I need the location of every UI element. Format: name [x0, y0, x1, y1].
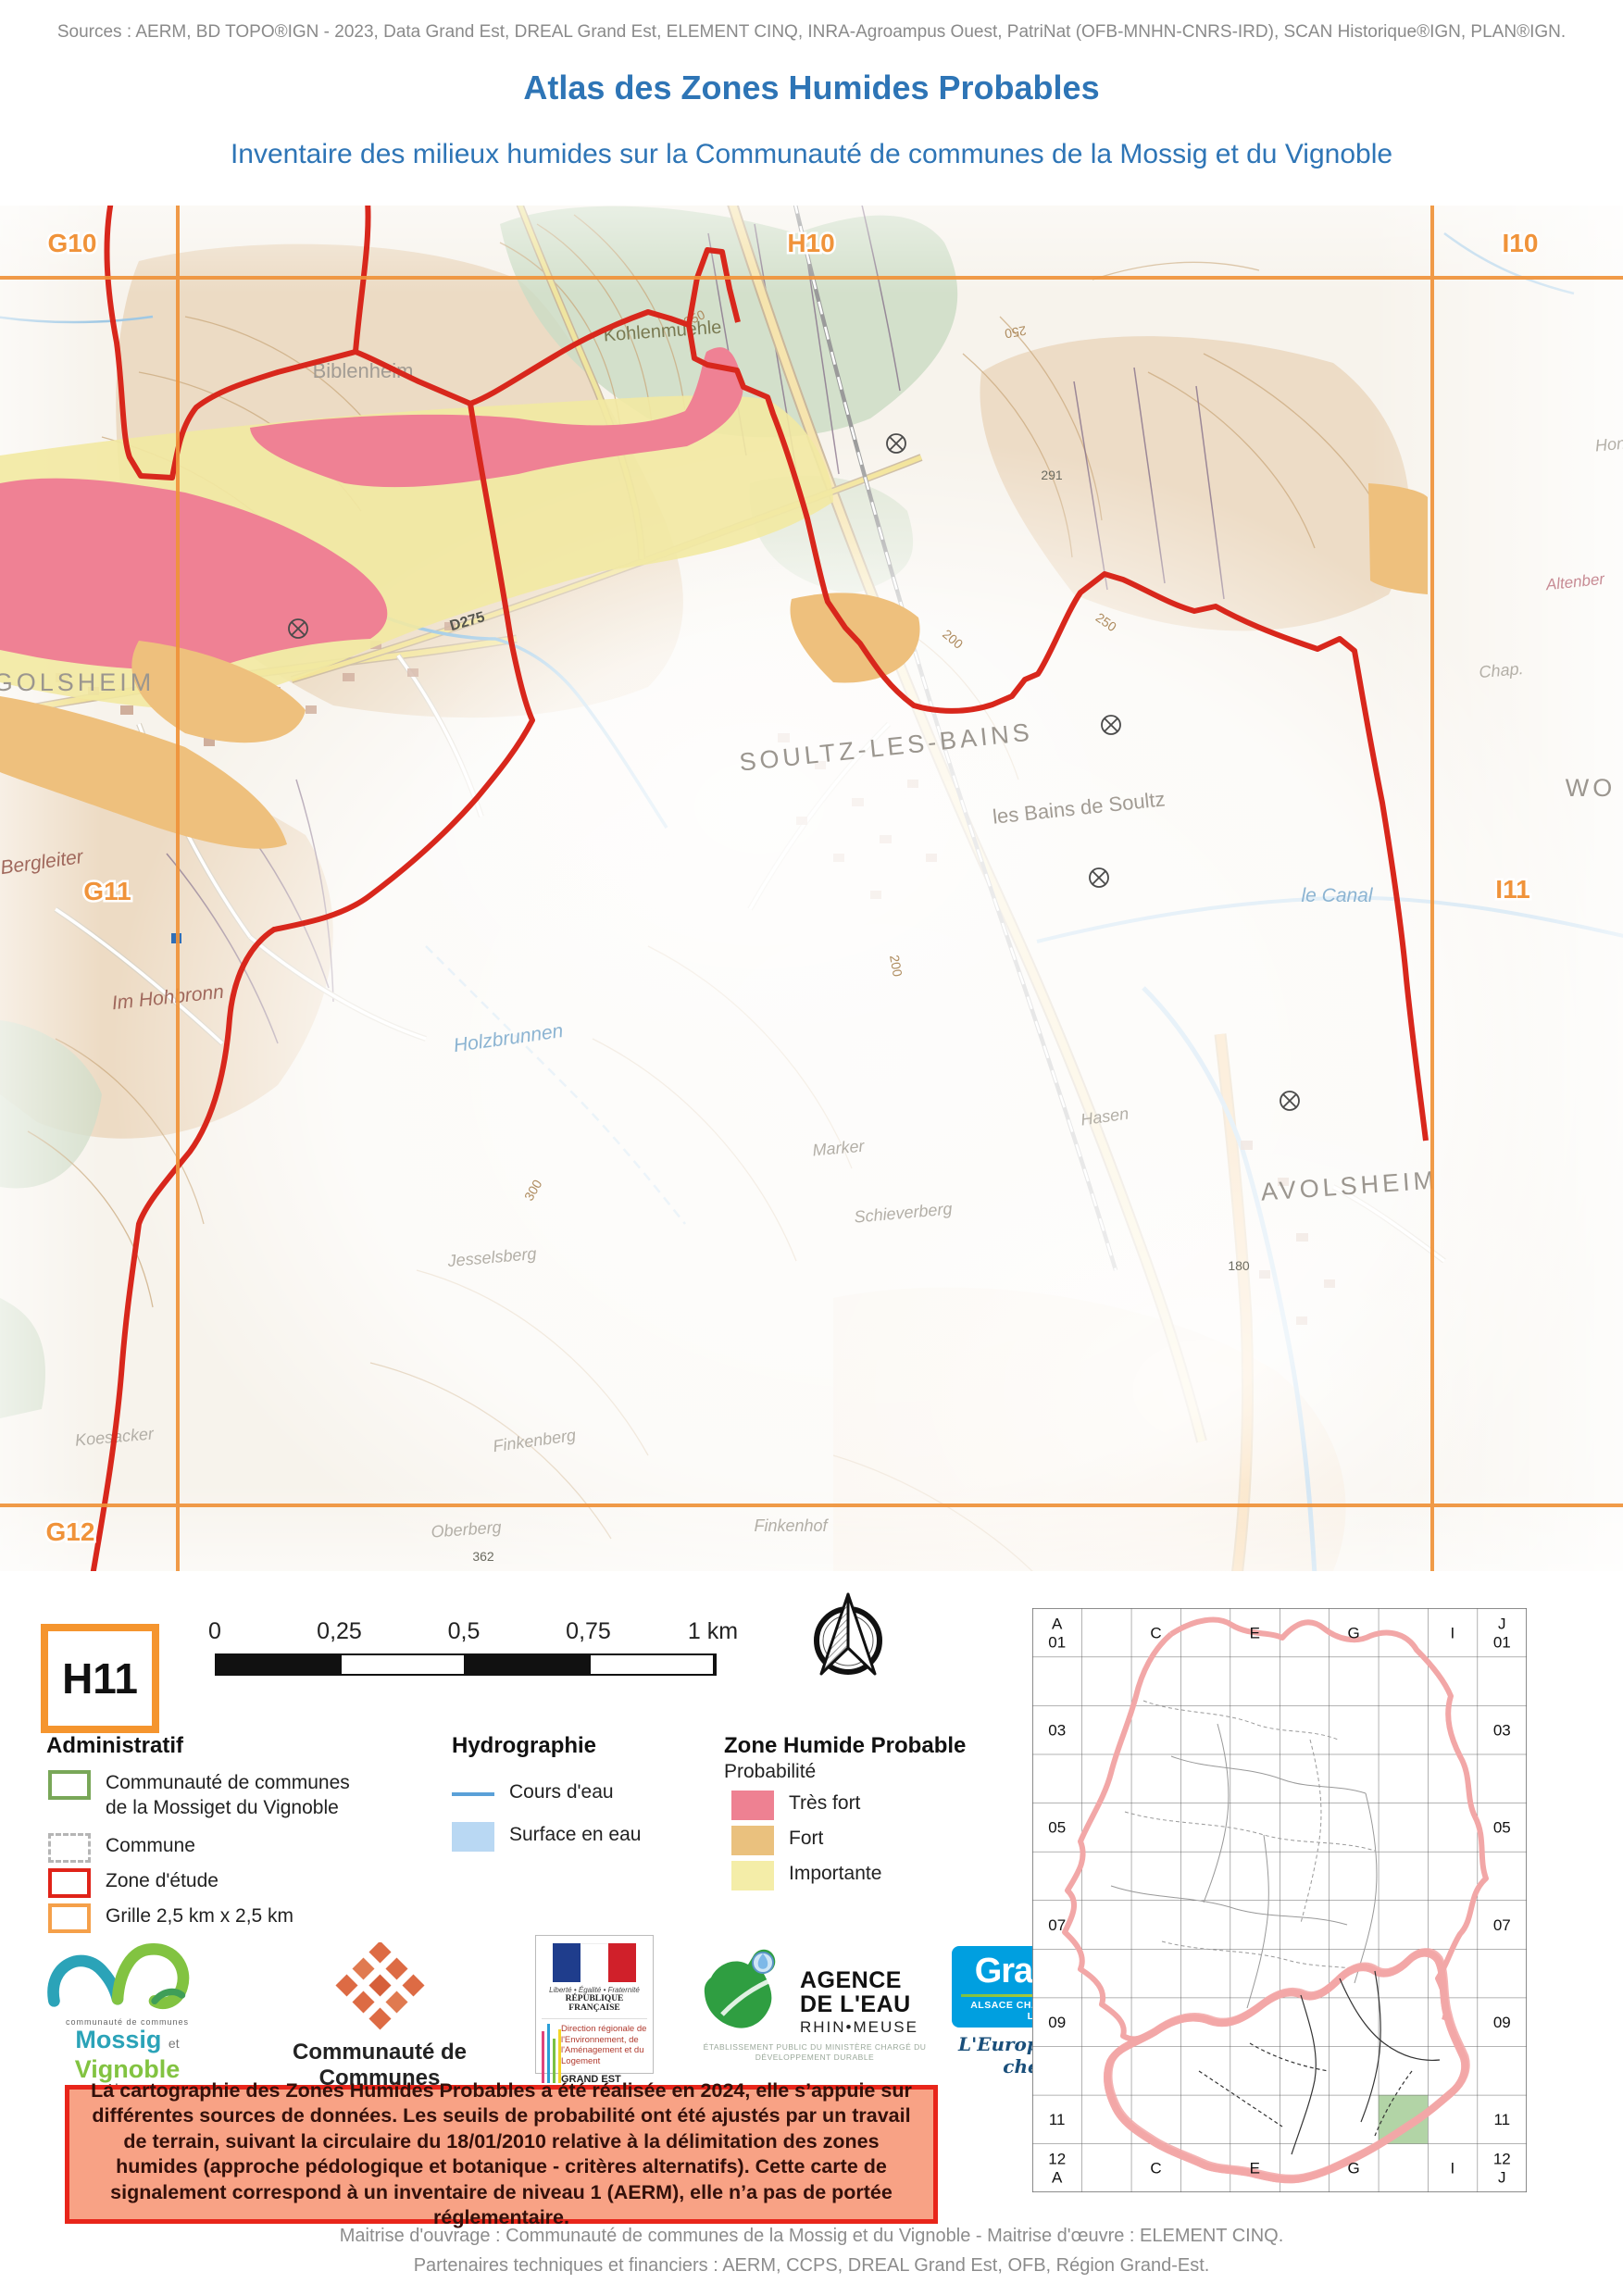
- legend-item-cc: Communauté de communes de la Mossiget du…: [48, 1770, 374, 1820]
- scale-tick: 0: [208, 1618, 221, 1645]
- svg-text:I: I: [1451, 2160, 1455, 2177]
- topographic-map-svg: BiblenheimKohlenmuehleGOLSHEIMSOULTZ-LES…: [0, 206, 1623, 1571]
- tile-label-box: H11: [41, 1624, 159, 1733]
- svg-text:05: 05: [1493, 1819, 1511, 1837]
- svg-text:09: 09: [1493, 2014, 1511, 2031]
- svg-text:I: I: [1451, 1624, 1455, 1641]
- legend-probabilite-label: Probabilité: [724, 1761, 816, 1783]
- importante-swatch: [731, 1861, 774, 1890]
- svg-text:G12: G12: [46, 1517, 95, 1546]
- svg-text:le Canal: le Canal: [1301, 885, 1373, 906]
- page-subtitle: Inventaire des milieux humides sur la Co…: [0, 139, 1623, 170]
- legend-item-commune: Commune: [48, 1833, 195, 1863]
- svg-text:E: E: [1250, 2160, 1260, 2177]
- warning-box: La cartographie des Zones Humides Probab…: [65, 2085, 938, 2224]
- agence-eau-logo-mark: [685, 1942, 796, 2039]
- tres-fort-swatch: [731, 1791, 774, 1820]
- cc-swatch: [48, 1770, 91, 1800]
- scale-tick: 0,25: [317, 1618, 362, 1645]
- legend-zhp-title: Zone Humide Probable: [724, 1733, 966, 1759]
- legend-item-fort: Fort: [731, 1826, 823, 1855]
- svg-text:Finkenhof: Finkenhof: [754, 1516, 829, 1535]
- svg-text:09: 09: [1048, 2014, 1066, 2031]
- tile-label: H11: [62, 1653, 138, 1703]
- legend-hydro-title: Hydrographie: [452, 1733, 596, 1759]
- scale-tick: 0,75: [566, 1618, 611, 1645]
- legend-item-tres-fort: Très fort: [731, 1791, 860, 1820]
- legend-admin-title: Administratif: [46, 1733, 183, 1759]
- scale-tick: 1 km: [688, 1618, 738, 1645]
- svg-text:07: 07: [1048, 1916, 1066, 1934]
- svg-text:G: G: [1347, 2160, 1359, 2177]
- logo-dreal-grand-est: Liberté • Égalité • Fraternité RÉPUBLIQU…: [535, 1935, 654, 2074]
- svg-text:C: C: [1150, 1624, 1161, 1641]
- warning-text: La cartographie des Zones Humides Probab…: [69, 2073, 933, 2237]
- legend-item-surface-eau: Surface en eau: [452, 1822, 641, 1852]
- legend-item-importante: Importante: [731, 1861, 881, 1890]
- overview-grid-map: A01CEGIJ010303050507070909111112ACEGI12J: [1032, 1608, 1527, 2192]
- surface-eau-swatch: [452, 1822, 494, 1852]
- svg-text:07: 07: [1493, 1916, 1511, 1934]
- svg-text:WO: WO: [1566, 774, 1617, 802]
- footer-line-2: Partenaires techniques et financiers : A…: [0, 2255, 1623, 2277]
- cours-eau-swatch: [452, 1779, 494, 1809]
- svg-text:GOLSHEIM: GOLSHEIM: [0, 668, 155, 696]
- svg-text:180: 180: [1228, 1258, 1250, 1273]
- svg-text:C: C: [1150, 2160, 1161, 2177]
- scale-tick: 0,5: [448, 1618, 481, 1645]
- svg-text:Hon: Hon: [1594, 434, 1623, 455]
- logo-agence-eau-rhin-meuse: AGENCE DE L'EAU RHIN•MEUSE ÉTABLISSEMENT…: [685, 1942, 944, 2072]
- french-flag-icon: [542, 1943, 647, 1983]
- mossig-logo-mark: [28, 1940, 227, 2013]
- svg-text:G11: G11: [83, 877, 131, 905]
- footer-line-1: Maitrise d'ouvrage : Communauté de commu…: [0, 2226, 1623, 2247]
- legend-item-cours-eau: Cours d'eau: [452, 1779, 614, 1809]
- scale-bar: 00,250,50,751 km: [215, 1618, 733, 1678]
- svg-text:03: 03: [1048, 1721, 1066, 1739]
- svg-text:G: G: [1347, 1624, 1359, 1641]
- svg-text:H10: H10: [787, 229, 834, 257]
- north-arrow-icon: [805, 1589, 891, 1689]
- saverne-logo-mark: [329, 1942, 431, 2035]
- page-title: Atlas des Zones Humides Probables: [0, 69, 1623, 107]
- svg-text:03: 03: [1493, 1721, 1511, 1739]
- svg-text:11: 11: [1493, 2111, 1510, 2128]
- svg-text:I10: I10: [1503, 229, 1539, 257]
- scale-bar-segments: [215, 1653, 717, 1676]
- svg-text:362: 362: [472, 1549, 494, 1564]
- legend-item-grille: Grille 2,5 km x 2,5 km: [48, 1903, 293, 1933]
- svg-text:Chap.: Chap.: [1479, 659, 1525, 681]
- grille-swatch: [48, 1903, 91, 1933]
- legend-item-zone-etude: Zone d'étude: [48, 1868, 218, 1898]
- zone-fort-est: [1368, 483, 1428, 594]
- fort-swatch: [731, 1826, 774, 1855]
- svg-text:E: E: [1250, 1624, 1260, 1641]
- commune-swatch: [48, 1833, 91, 1863]
- sources-line: Sources : AERM, BD TOPO®IGN - 2023, Data…: [0, 22, 1623, 43]
- svg-text:291: 291: [1041, 468, 1063, 482]
- svg-text:11: 11: [1049, 2111, 1066, 2128]
- svg-text:05: 05: [1048, 1819, 1066, 1837]
- svg-text:I11: I11: [1495, 875, 1529, 904]
- zone-etude-swatch: [48, 1868, 91, 1898]
- svg-text:G10: G10: [48, 229, 97, 257]
- main-map: BiblenheimKohlenmuehleGOLSHEIMSOULTZ-LES…: [0, 206, 1623, 1571]
